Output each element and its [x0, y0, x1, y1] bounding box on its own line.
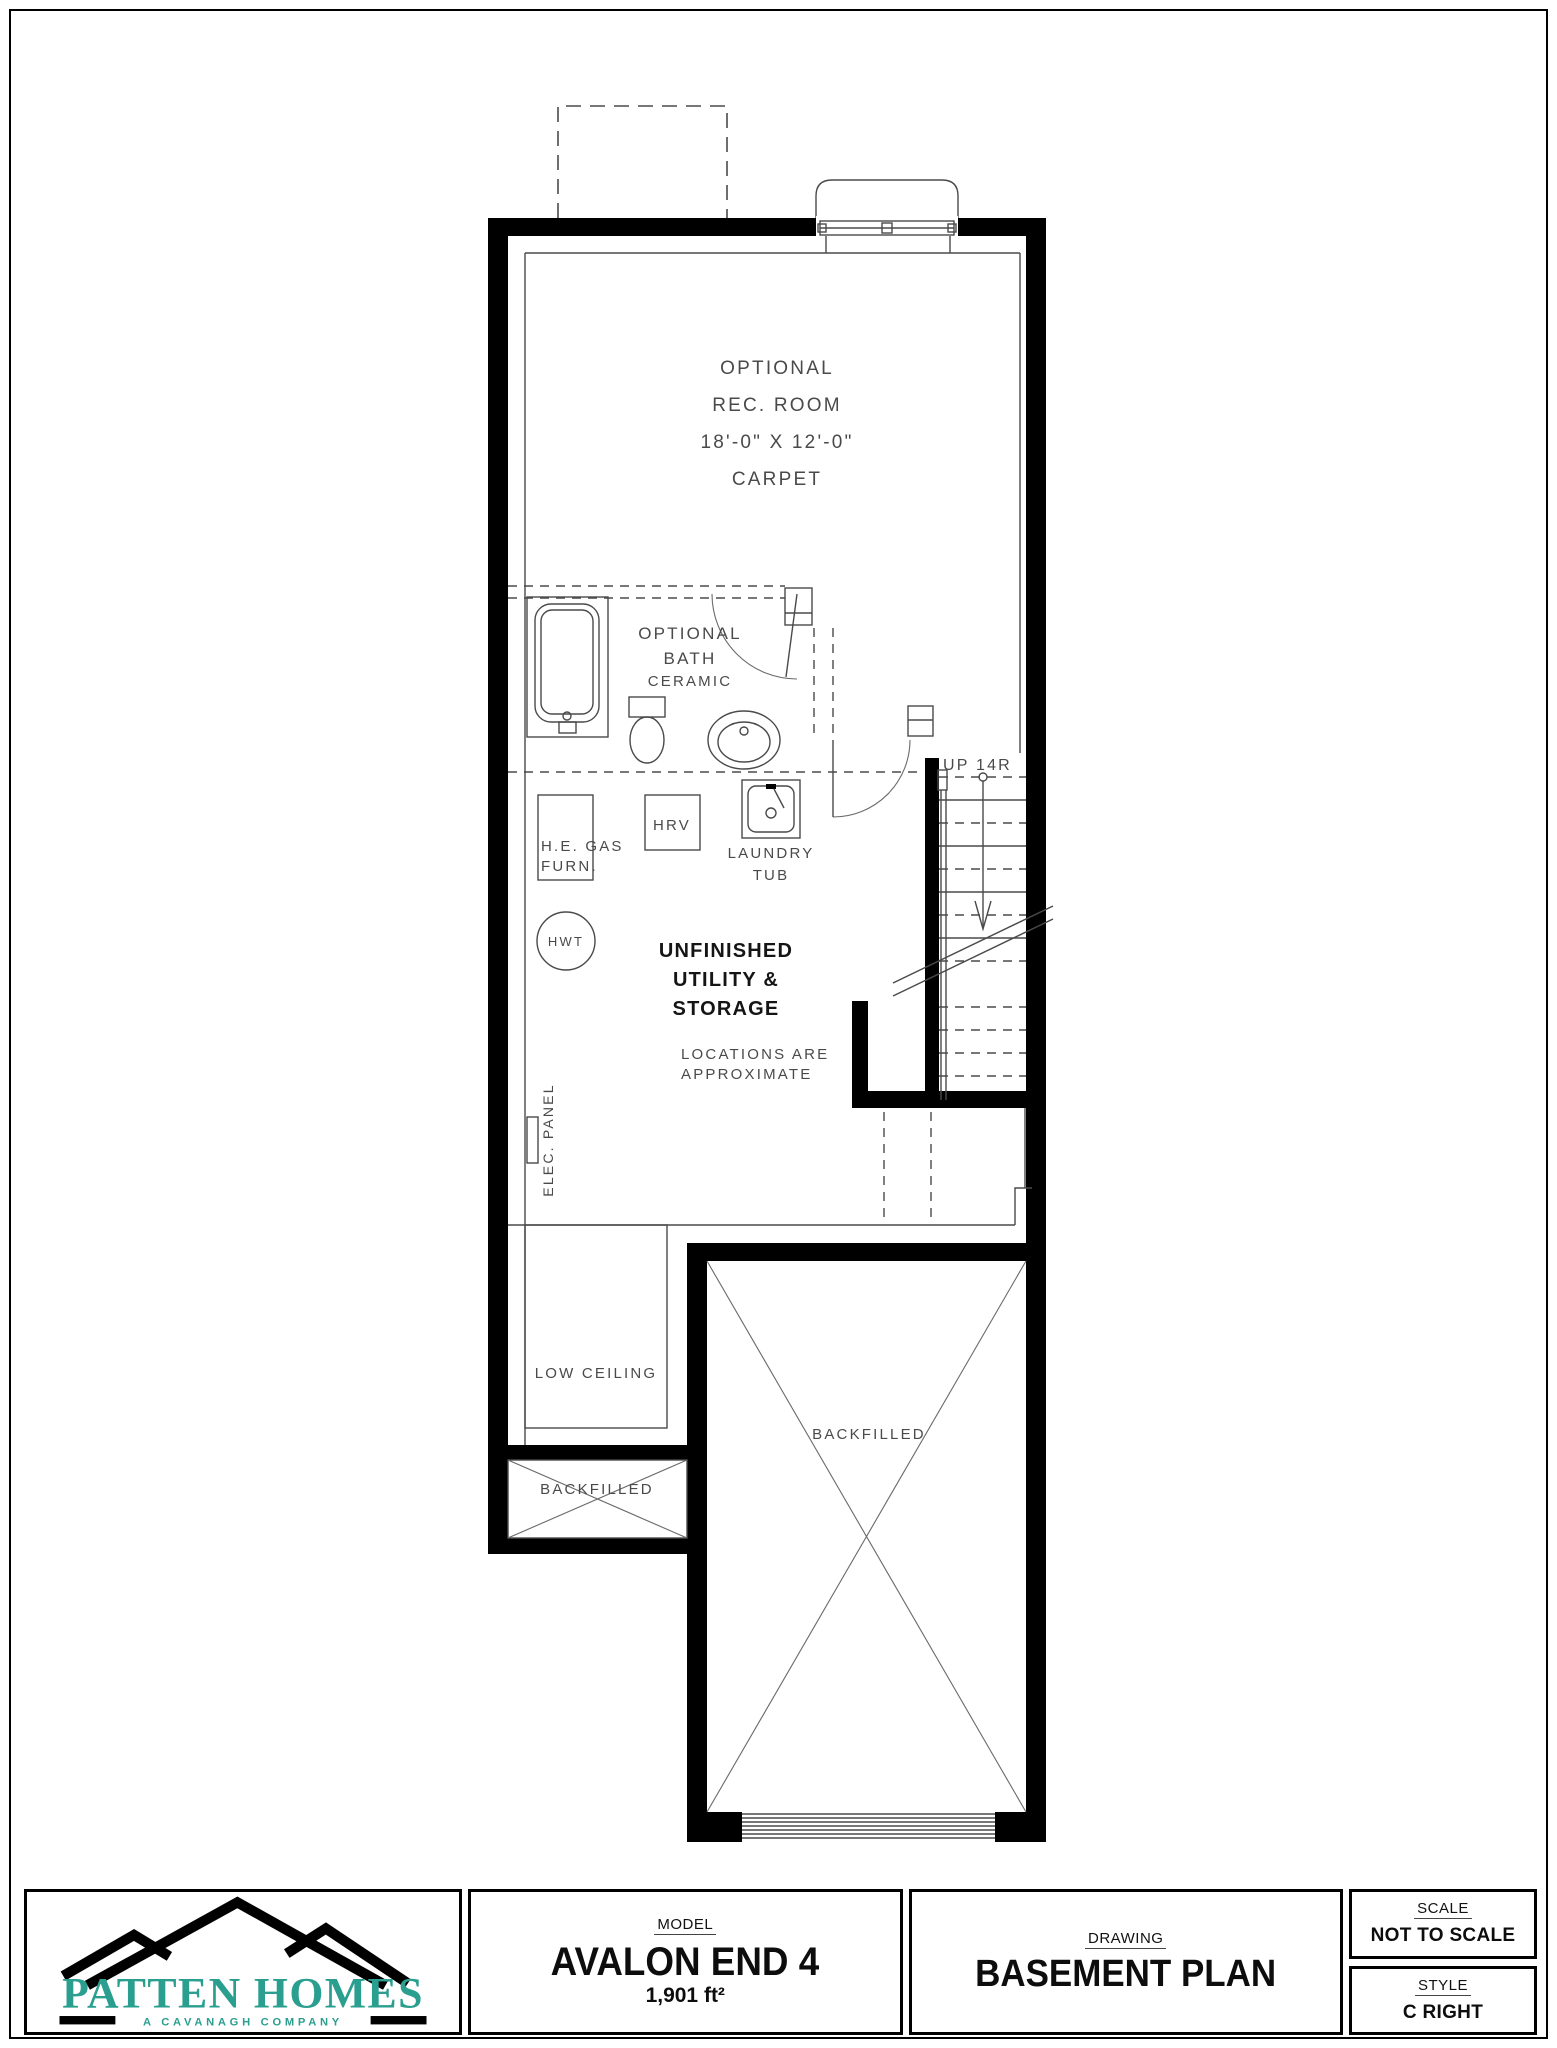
furnace-label-1: H.E. GAS: [541, 838, 624, 855]
backfilled-small-label: BACKFILLED: [540, 1481, 654, 1498]
sink: [708, 711, 780, 769]
garage-door-opening: [742, 1810, 995, 1844]
model-label: MODEL: [654, 1916, 716, 1935]
rec-room-dimensions: 18'-0" X 12'-0": [700, 432, 853, 453]
title-block: PATTEN HOMES A CAVANAGH COMPANY MODEL AV…: [24, 1889, 1537, 2035]
utility-label-1: UNFINISHED: [659, 940, 793, 962]
logo-tagline: A CAVANAGH COMPANY: [143, 2016, 343, 2028]
scale-value: NOT TO SCALE: [1371, 1925, 1516, 1947]
basement-window: [816, 216, 958, 253]
utility-label-3: STORAGE: [673, 998, 780, 1020]
bathtub: [527, 597, 608, 737]
drawing-box: DRAWING BASEMENT PLAN: [909, 1889, 1344, 2035]
utility-label-2: UTILITY &: [673, 969, 779, 991]
scale-label: SCALE: [1414, 1900, 1472, 1919]
logo-bar-right: [371, 2016, 427, 2024]
locations-note-2: APPROXIMATE: [681, 1066, 812, 1083]
locations-note-1: LOCATIONS ARE: [681, 1046, 829, 1063]
logo-company-name: PATTEN HOMES: [62, 1970, 424, 2018]
stair-up-label: UP 14R: [943, 757, 1012, 774]
stair-walls: [852, 758, 1045, 1108]
bath-flooring: CERAMIC: [648, 673, 733, 690]
laundry-label-2: TUB: [753, 867, 790, 884]
backfilled-area-small: [508, 1460, 687, 1538]
logo-bar-left: [59, 2016, 115, 2024]
style-box: STYLE C RIGHT: [1349, 1966, 1537, 2036]
furnace-label-2: FURN.: [541, 858, 598, 875]
bath-label-1: OPTIONAL: [638, 624, 742, 643]
laundry-label-1: LAUNDRY: [728, 845, 815, 862]
laundry-tub: [742, 780, 800, 838]
backfilled-garage-label: BACKFILLED: [812, 1426, 926, 1443]
garage-door: [742, 1814, 995, 1838]
optional-bath: [508, 586, 933, 817]
backfilled-area-garage: [707, 1261, 1026, 1844]
model-box: MODEL AVALON END 4 1,901 ft²: [468, 1889, 903, 2035]
style-label: STYLE: [1415, 1977, 1471, 1996]
scale-style-column: SCALE NOT TO SCALE STYLE C RIGHT: [1349, 1889, 1537, 2035]
hall-door: [833, 706, 933, 817]
electrical-panel: [527, 1117, 538, 1163]
bath-label-2: BATH: [664, 649, 717, 668]
drawing-sheet: OPTIONAL REC. ROOM 18'-0" X 12'-0" CARPE…: [0, 0, 1557, 2048]
style-value: C RIGHT: [1403, 2002, 1483, 2024]
toilet: [629, 697, 665, 763]
model-name: AVALON END 4: [551, 1941, 820, 1983]
company-logo-box: PATTEN HOMES A CAVANAGH COMPANY: [24, 1889, 462, 2035]
hwt-label: HWT: [548, 934, 584, 949]
hrv-label: HRV: [653, 817, 691, 834]
rec-room-label-2: REC. ROOM: [712, 395, 842, 416]
drawing-name: BASEMENT PLAN: [975, 1955, 1276, 1995]
rec-room-label-1: OPTIONAL: [720, 358, 834, 379]
scale-box: SCALE NOT TO SCALE: [1349, 1889, 1537, 1959]
low-ceiling-label: LOW CEILING: [535, 1365, 658, 1382]
basement-floor-plan: OPTIONAL REC. ROOM 18'-0" X 12'-0" CARPE…: [0, 0, 1557, 1886]
model-area: 1,901 ft²: [646, 1984, 725, 2008]
deck-dashed-outline: [558, 106, 727, 218]
drawing-label: DRAWING: [1085, 1930, 1166, 1949]
elec-panel-label: ELEC. PANEL: [540, 1083, 556, 1196]
patten-homes-logo: PATTEN HOMES A CAVANAGH COMPANY: [30, 1894, 456, 2030]
rec-room-flooring: CARPET: [732, 469, 822, 490]
window-well-outline: [816, 180, 958, 218]
